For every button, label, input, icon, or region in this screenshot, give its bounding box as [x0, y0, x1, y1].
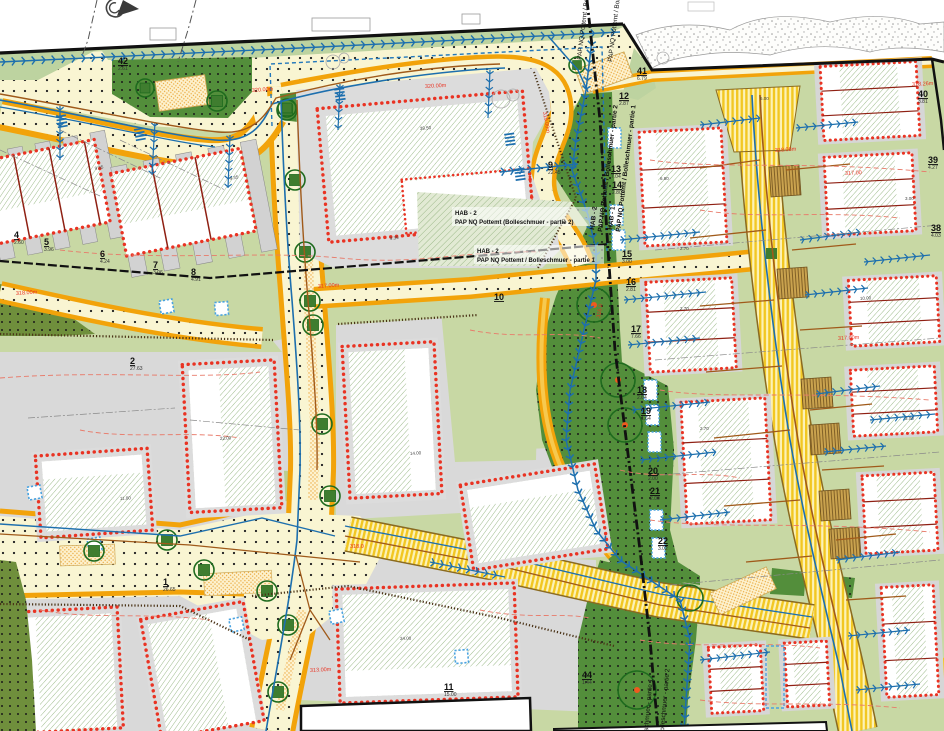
svg-text:PAP NQ Pottemt (Bolleschmuer -: PAP NQ Pottemt (Bolleschmuer - partie 2): [455, 220, 573, 226]
svg-text:313.00m: 313.00m: [310, 667, 332, 674]
svg-text:5: 5: [44, 237, 49, 247]
svg-text:2: 2: [130, 356, 135, 366]
svg-text:38: 38: [931, 223, 941, 233]
svg-text:19: 19: [641, 406, 651, 416]
svg-text:4.27: 4.27: [928, 165, 938, 171]
svg-text:2.70: 2.70: [680, 246, 689, 251]
svg-text:3.00: 3.00: [905, 196, 914, 201]
svg-text:7.66: 7.66: [631, 334, 641, 340]
svg-text:26.65: 26.65: [163, 587, 176, 593]
svg-text:15.00: 15.00: [444, 692, 457, 698]
svg-text:3.00: 3.00: [622, 259, 632, 265]
svg-text:20: 20: [648, 466, 658, 476]
svg-text:6.00: 6.00: [760, 96, 769, 101]
svg-text:39.50: 39.50: [420, 125, 432, 131]
svg-text:HAB - 2: HAB - 2: [477, 249, 499, 255]
svg-text:PAP NQ Pottemt / Bolleschmuer: PAP NQ Pottemt / Bolleschmuer - partie 1: [477, 258, 595, 264]
svg-text:3.81: 3.81: [918, 99, 928, 105]
svg-text:2.00: 2.00: [648, 476, 658, 482]
svg-text:15: 15: [622, 249, 632, 259]
svg-text:317.00m: 317.00m: [838, 335, 860, 342]
svg-text:27.63: 27.63: [130, 366, 143, 372]
svg-text:6.79: 6.79: [637, 76, 647, 82]
svg-text:11.00: 11.00: [120, 495, 132, 501]
svg-text:12: 12: [619, 91, 629, 101]
svg-text:318.26m: 318.26m: [912, 81, 934, 88]
svg-text:2.81: 2.81: [626, 287, 636, 293]
svg-text:2.61: 2.61: [118, 66, 128, 72]
svg-text:318.0: 318.0: [350, 544, 364, 550]
svg-text:4.91: 4.91: [191, 277, 201, 283]
svg-text:11: 11: [444, 682, 454, 692]
svg-text:22.00: 22.00: [220, 435, 232, 441]
svg-text:3.06: 3.06: [153, 270, 163, 276]
svg-text:1: 1: [163, 577, 168, 587]
svg-text:7: 7: [153, 260, 158, 270]
svg-text:8: 8: [191, 267, 196, 277]
svg-text:14.00: 14.00: [410, 450, 422, 456]
svg-text:3.96: 3.96: [44, 247, 54, 253]
svg-text:41: 41: [637, 66, 647, 76]
svg-text:40: 40: [918, 89, 928, 99]
svg-text:HAB - 2: HAB - 2: [455, 211, 477, 217]
svg-text:44: 44: [582, 670, 592, 680]
svg-text:4.03: 4.03: [931, 233, 941, 239]
svg-text:9: 9: [548, 160, 553, 170]
svg-text:18: 18: [637, 385, 647, 395]
svg-text:42: 42: [118, 56, 128, 66]
svg-text:2.00: 2.00: [650, 496, 660, 502]
svg-text:10: 10: [494, 292, 504, 302]
svg-text:320.00m: 320.00m: [425, 83, 447, 90]
svg-text:2.64: 2.64: [637, 395, 647, 401]
svg-text:22: 22: [658, 536, 668, 546]
svg-text:3.02: 3.02: [658, 546, 668, 552]
svg-text:10.00: 10.00: [860, 295, 872, 301]
svg-text:34.00: 34.00: [400, 636, 412, 641]
svg-text:17: 17: [631, 324, 641, 334]
svg-text:22.45: 22.45: [548, 170, 561, 176]
svg-text:3.00: 3.00: [905, 416, 914, 421]
svg-text:39: 39: [928, 155, 938, 165]
svg-text:1.64: 1.64: [641, 416, 651, 422]
svg-text:2.60: 2.60: [14, 240, 24, 246]
svg-text:16: 16: [626, 277, 636, 287]
svg-text:6: 6: [100, 249, 105, 259]
svg-text:2.87: 2.87: [619, 101, 629, 107]
svg-text:6.80: 6.80: [660, 176, 669, 181]
svg-text:2.70: 2.70: [700, 426, 709, 431]
svg-text:4.24: 4.24: [100, 259, 110, 265]
svg-text:21: 21: [650, 486, 660, 496]
svg-text:317.00: 317.00: [845, 170, 862, 177]
svg-text:13: 13: [611, 164, 621, 174]
svg-text:1.44: 1.44: [582, 680, 592, 686]
svg-text:2.70: 2.70: [680, 306, 689, 311]
svg-text:4: 4: [14, 230, 19, 240]
